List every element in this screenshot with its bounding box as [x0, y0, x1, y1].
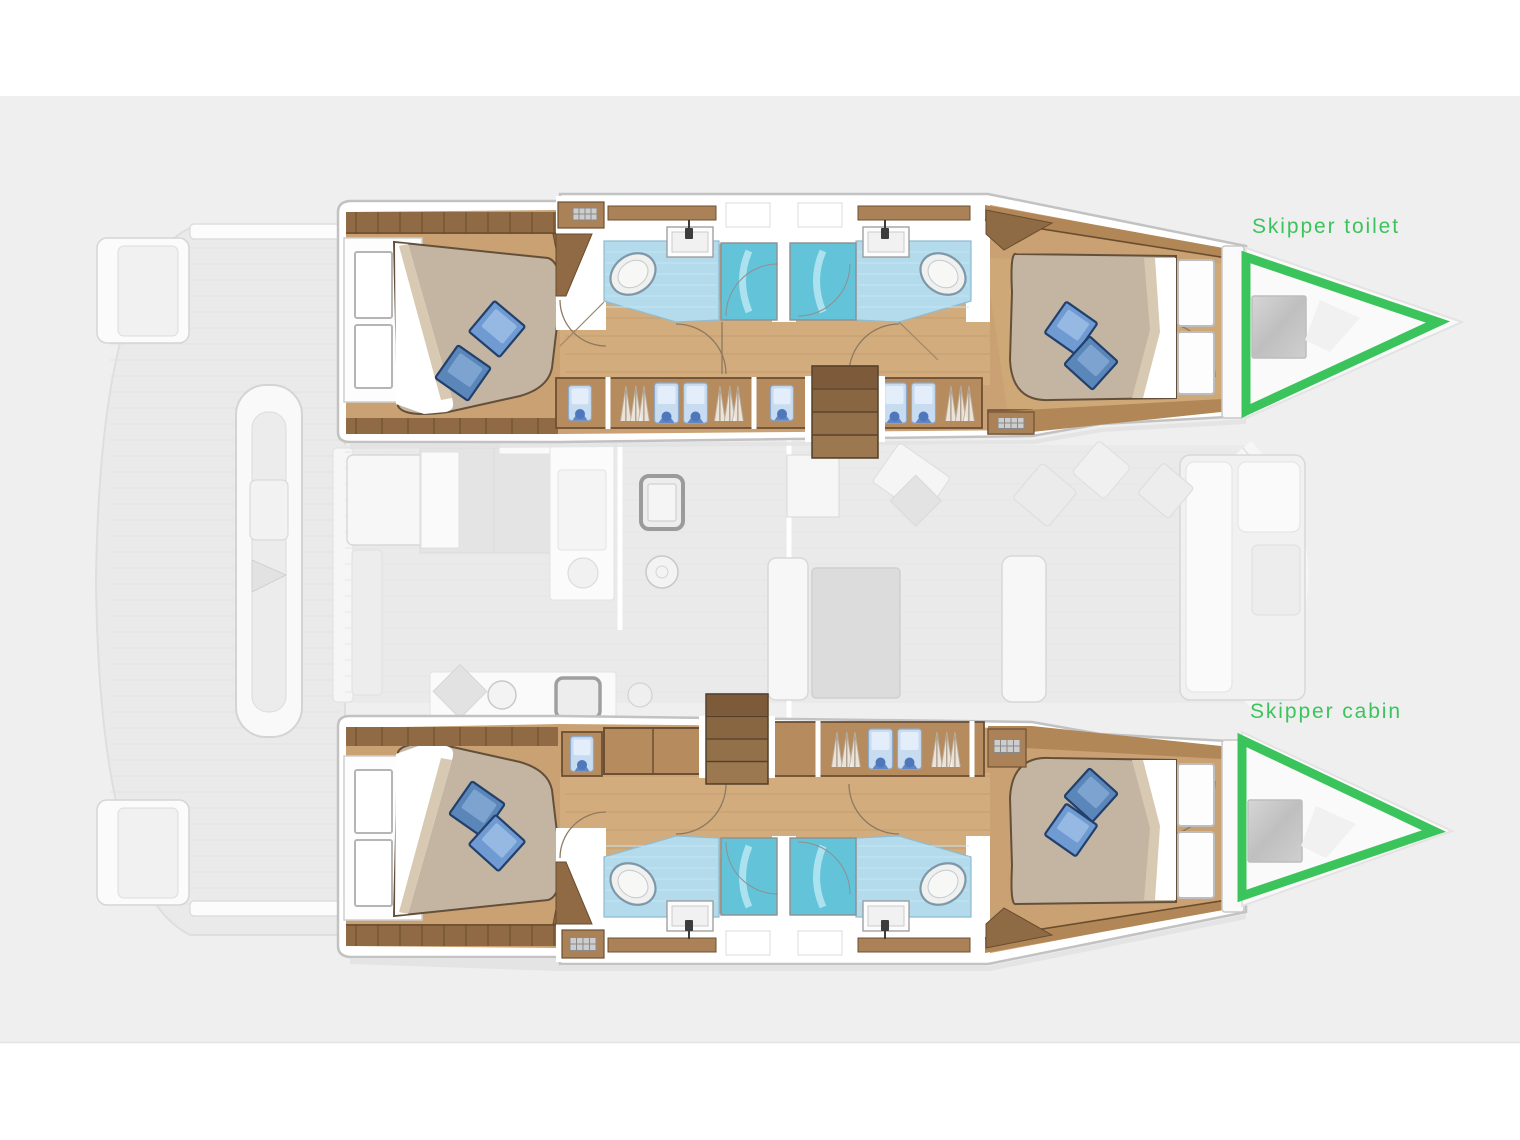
svg-text:Skipper cabin: Skipper cabin [1250, 700, 1402, 723]
svg-text:Skipper toilet: Skipper toilet [1252, 215, 1400, 238]
